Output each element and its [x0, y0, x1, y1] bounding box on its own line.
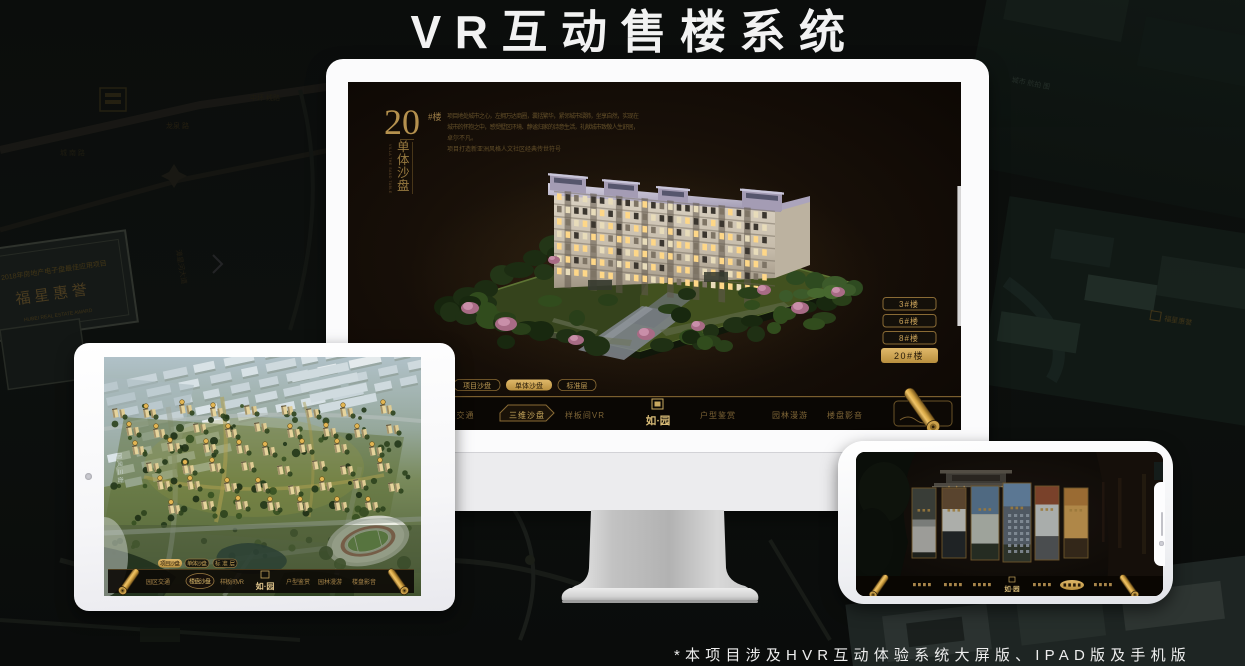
svg-text:项目打造新亚洲风格人文社区经典传世符号: 项目打造新亚洲风格人文社区经典传世符号	[447, 145, 561, 153]
svg-text:中环 线路: 中环 线路	[250, 93, 280, 102]
svg-text:项目沙盘: 项目沙盘	[463, 381, 491, 390]
svg-text:样板间VR: 样板间VR	[565, 410, 605, 420]
svg-text:单体沙盘: 单体沙盘	[187, 560, 207, 568]
svg-text:盘: 盘	[397, 178, 410, 193]
svg-text:卓尔不凡。: 卓尔不凡。	[447, 134, 477, 142]
svg-text:龙泉 路: 龙泉 路	[166, 121, 189, 130]
svg-text:如·园: 如·园	[256, 581, 275, 591]
svg-text:项目地处城市之心，左拥万达商圈，囊括繁华，紧邻城市绿肺，坐享: 项目地处城市之心，左拥万达商圈，囊括繁华，紧邻城市绿肺，坐享自然，实现在	[447, 112, 639, 120]
svg-text:园区交通: 园区交通	[146, 578, 170, 586]
svg-text:6#楼: 6#楼	[899, 316, 919, 326]
svg-text:户型鉴赏: 户型鉴赏	[286, 578, 310, 586]
svg-text:样板间VR: 样板间VR	[220, 578, 245, 586]
svg-text:三维沙盘: 三维沙盘	[509, 410, 545, 420]
svg-text:园林漫游: 园林漫游	[318, 578, 342, 586]
svg-text:标准层: 标准层	[567, 381, 588, 390]
svg-text:城 南 路: 城 南 路	[60, 148, 85, 157]
svg-text:单体沙盘: 单体沙盘	[515, 381, 543, 390]
svg-text:VILLA THE SAND TABLE: VILLA THE SAND TABLE	[388, 144, 392, 194]
svg-text:3#楼: 3#楼	[899, 299, 919, 309]
svg-text:项目沙盘: 项目沙盘	[160, 560, 180, 568]
svg-text:沙: 沙	[397, 166, 410, 180]
svg-text:#楼: #楼	[428, 111, 442, 122]
svg-text:城市的怀抱之中，感受墅区环境、静谧归家的诗意生活，礼献城市致: 城市的怀抱之中，感受墅区环境、静谧归家的诗意生活，礼献城市致敬人生舒居，	[447, 123, 639, 131]
svg-text:楼盘影音: 楼盘影音	[352, 578, 376, 586]
svg-text:楼盘影音: 楼盘影音	[827, 410, 863, 420]
svg-text:园林漫游: 园林漫游	[772, 410, 808, 420]
svg-text:单: 单	[397, 140, 410, 154]
svg-text:楼盘沙盘: 楼盘沙盘	[189, 578, 211, 586]
svg-text:20#楼: 20#楼	[894, 350, 924, 361]
svg-text:标准层: 标准层	[215, 560, 235, 568]
svg-text:户型鉴赏: 户型鉴赏	[700, 410, 736, 420]
svg-text:如·园: 如·园	[1004, 584, 1020, 593]
svg-text:20: 20	[384, 102, 420, 142]
svg-text:如·园: 如·园	[646, 414, 671, 427]
svg-text:8#楼: 8#楼	[899, 333, 919, 343]
svg-text:体: 体	[397, 153, 410, 167]
